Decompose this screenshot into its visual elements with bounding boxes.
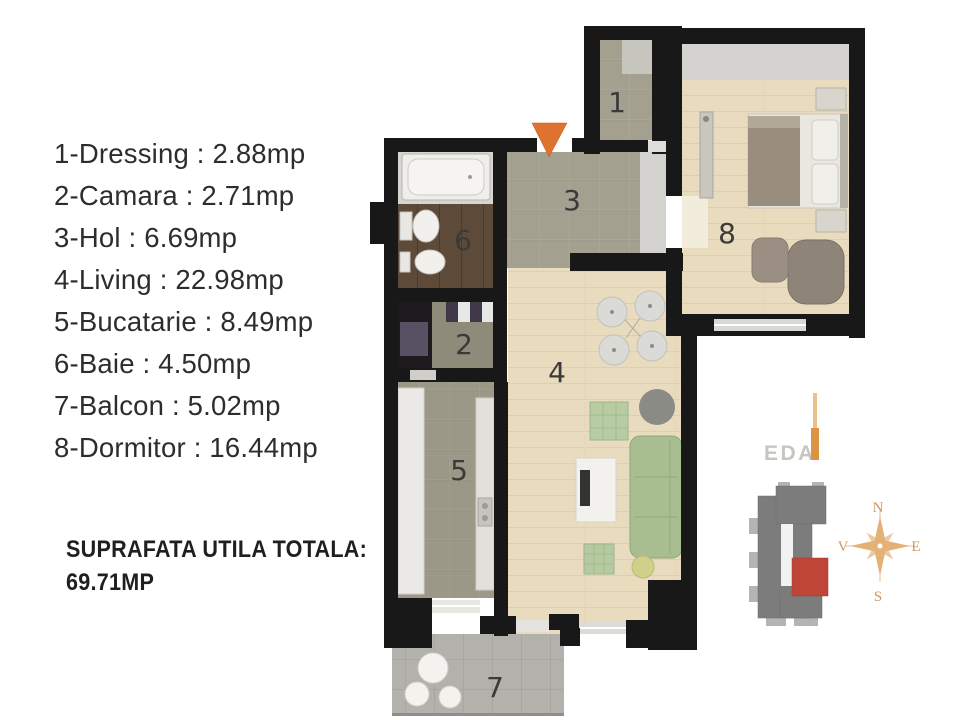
dressing-door-opening [648,141,666,152]
eda-logo: EDA [764,393,819,465]
balcony-door-opening [516,620,549,632]
bed [748,114,848,208]
room-label-bucatarie: 5 [450,454,468,487]
balcon-edge [392,713,564,716]
nightstand [816,88,846,110]
eda-logo-crane [811,428,819,460]
floorplan-page: 1-Dressing : 2.88mp 2-Camara : 2.71mp 3-… [0,0,963,720]
room-label-camara: 2 [455,328,473,361]
entrance-arrow-icon [532,123,567,157]
sofa [630,436,682,558]
bathtub [402,154,490,200]
room-label-baie: 6 [454,224,472,257]
eda-logo-crane [813,393,817,429]
room-label-hol: 3 [563,184,581,217]
locator-courtyard [781,524,793,586]
room-label-dormitor: 8 [718,217,736,250]
tv-stand [576,458,616,522]
compass-east: E [911,539,920,555]
room-label-dressing: 1 [608,86,626,119]
room-label-living: 4 [548,356,566,389]
eda-logo-text: EDA [764,442,816,465]
nightstand [816,210,846,232]
floorplan: 1 3 6 2 5 4 8 7 EDA [0,0,963,720]
armchair [788,240,844,304]
compass-west: V [838,539,849,555]
building-locator [749,482,828,626]
pouf [639,389,675,425]
camara-door-opening [410,370,436,380]
toilet [400,210,439,242]
dressing-shadow [622,40,652,74]
wardrobe [700,112,713,198]
room-label-balcon: 7 [486,671,504,704]
bidet [400,250,445,274]
passage-floor [640,152,666,268]
ottoman [752,238,788,282]
locator-building [776,486,826,524]
compass-south: S [874,589,882,605]
dormitor-door-swing [682,196,708,248]
compass-rose: N E S V [838,500,921,605]
coffee-table [590,402,628,440]
unit-highlight [792,558,828,596]
dormitor-wall-face [682,44,849,80]
compass-north: N [873,500,884,516]
